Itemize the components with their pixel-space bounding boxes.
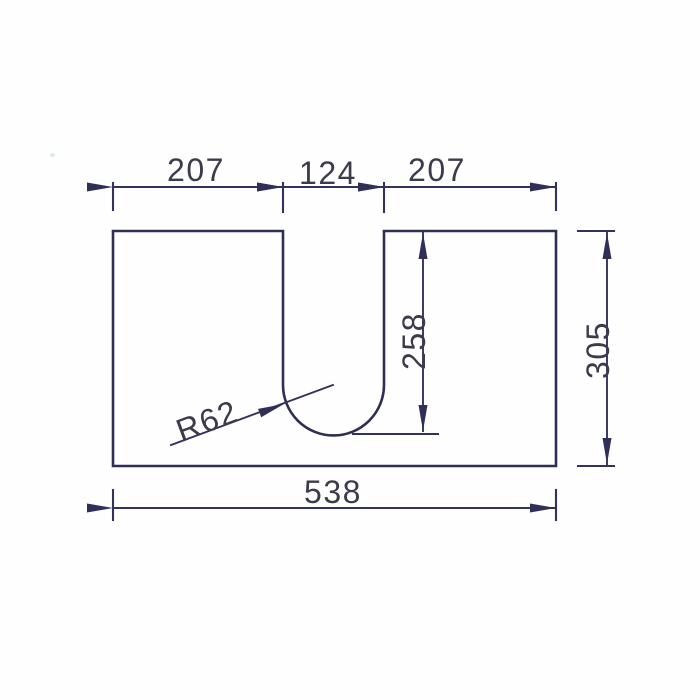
right-dimension-group: 305 — [578, 231, 616, 466]
dim-label-207-right: 207 — [408, 152, 466, 188]
engineering-drawing-u-slot-plate: 207 124 207 538 305 258 — [0, 0, 700, 700]
dim-label-207-left: 207 — [167, 152, 225, 188]
arrowhead — [87, 183, 113, 192]
arrowhead — [419, 233, 428, 259]
arrowhead — [87, 504, 113, 513]
dim-label-538: 538 — [304, 474, 362, 510]
arrowhead — [603, 233, 612, 259]
arrowhead — [530, 504, 556, 513]
dim-label-305: 305 — [580, 321, 616, 379]
arrowhead — [419, 405, 428, 431]
slot-depth-dimension-group: 258 — [353, 233, 438, 434]
arrowhead — [358, 183, 384, 192]
arrowhead — [530, 183, 556, 192]
drawing-sheet: 207 124 207 538 305 258 — [0, 0, 700, 700]
bottom-dimension-group: 538 — [87, 474, 556, 520]
radius-callout-group: R62 — [171, 385, 333, 449]
dim-label-258: 258 — [396, 312, 432, 370]
arrowhead — [257, 183, 283, 192]
dim-label-r62: R62 — [171, 393, 243, 449]
arrowhead — [258, 400, 286, 417]
arrowhead — [603, 438, 612, 464]
dim-label-124: 124 — [299, 155, 357, 191]
top-dimension-group: 207 124 207 — [87, 152, 556, 212]
